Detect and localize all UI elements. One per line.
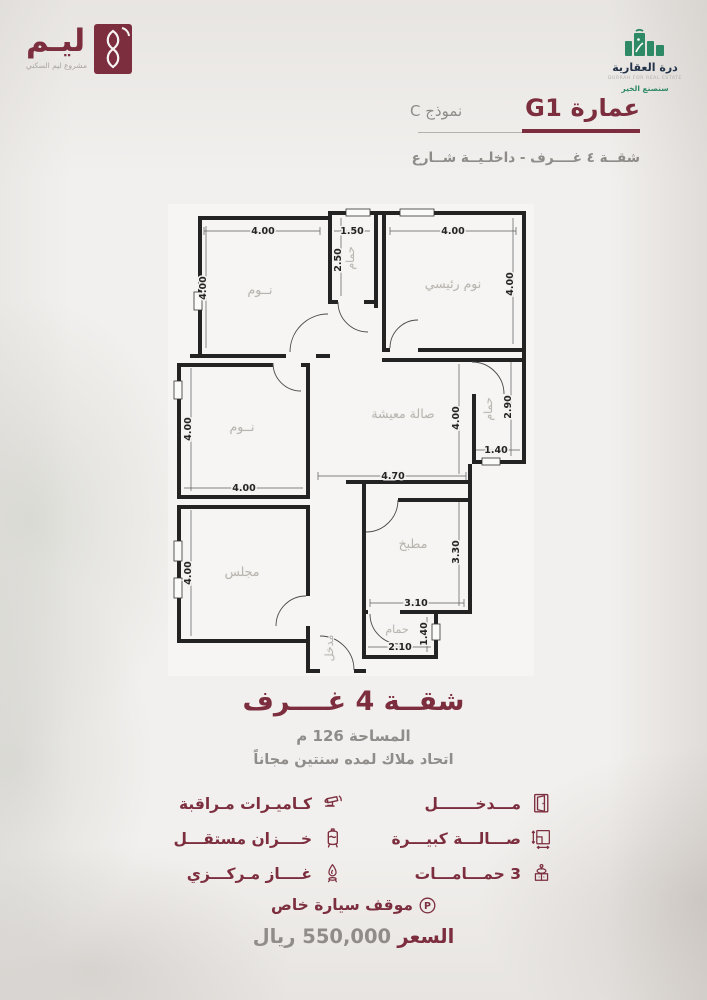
dim-bath-top-w: 1.50: [340, 226, 364, 237]
feature-label: كـاميـرات مـراقبة: [179, 795, 312, 813]
dim-kitchen-right: 3.30: [451, 540, 462, 564]
brand-durrah-tagline: سنصنع الخير: [605, 84, 685, 93]
poster-page: ليـم مشروع ليم السكني درة العقارية DURRA…: [0, 0, 707, 1000]
price-row: السعر 550,000 ريال: [0, 925, 707, 948]
dim-bath-right-w: 1.40: [484, 445, 508, 456]
sofa-icon: [530, 827, 553, 850]
tank-icon: [321, 827, 344, 850]
feature-central-gas: غــــاز مـركـــزي: [154, 862, 344, 885]
room-label-bedroom-ml: نــوم: [230, 419, 255, 435]
dim-majlis-left: 4.00: [183, 561, 194, 585]
feature-label: 3 حمـــامـــات: [415, 865, 521, 883]
leem-logo-icon: [94, 24, 132, 76]
summary-note: اتحاد ملاك لمده سنتين مجاناً: [0, 752, 707, 768]
apartment-subtitle: شقــة ٤ غــــرف - داخلـيــة شــارع: [410, 150, 640, 166]
dim-living-right: 4.00: [451, 406, 462, 430]
feature-label: مـــدخـــــــل: [424, 795, 521, 813]
summary-title: شقــة 4 غــــرف: [0, 686, 707, 717]
room-label-bath-right: حمام: [482, 397, 495, 420]
dim-ml-left: 4.00: [183, 417, 194, 441]
feature-label: غــــاز مـركـــزي: [187, 865, 312, 883]
parking-letter: P: [424, 901, 431, 912]
dim-bath-bottom-h: 1.40: [419, 622, 430, 646]
room-label-entrance: مدخل: [323, 634, 336, 661]
model-label: نموذج C: [410, 102, 462, 120]
feature-cctv: كـاميـرات مـراقبة: [154, 792, 344, 815]
room-label-majlis: مجلس: [225, 564, 260, 580]
feature-parking: P موقف سيارة خاص: [271, 896, 436, 914]
feature-entrance: مـــدخـــــــل: [348, 792, 553, 815]
room-label-master-bedroom: نوم رئيسي: [425, 276, 482, 292]
feature-3-bathrooms: 3 حمـــامـــات: [348, 862, 553, 885]
summary-area: المساحة 126 م: [0, 727, 707, 745]
price-value: 550,000 ريال: [253, 925, 391, 948]
floor-plan: 4.00 4.00 1.50 2.50 4.00 4.00 4.00 4.00 …: [160, 196, 550, 681]
room-label-bath-top: حمام: [344, 246, 357, 269]
price-label: السعر: [397, 925, 454, 948]
dim-living-bottom: 4.70: [381, 471, 405, 482]
dim-tl-left: 4.00: [198, 276, 209, 300]
brand-durrah-name: درة العقارية: [605, 61, 685, 74]
dim-kitchen-bottom: 3.10: [404, 598, 428, 609]
feature-label: صـــالـــة كبيـــرة: [391, 830, 521, 848]
brand-durrah-subtitle: DURRAH FOR REAL ESTATE: [605, 76, 685, 81]
room-label-living: صالة معيشة: [371, 406, 434, 421]
parking-icon: P: [419, 897, 436, 914]
feature-water-tank: خــــزان مستقـــل: [154, 827, 344, 850]
parking-label: موقف سيارة خاص: [271, 896, 413, 914]
dim-master-top: 4.00: [441, 226, 465, 237]
features-grid: مـــدخـــــــل كـاميـرات مـراقبة: [154, 792, 553, 885]
title-block: عمارة G1 نموذج C شقــة ٤ غــــرف - داخلـ…: [410, 94, 640, 166]
dim-bath-top-h: 2.50: [333, 248, 344, 272]
brand-leem: ليـم مشروع ليم السكني: [26, 24, 132, 76]
feature-label: خــــزان مستقـــل: [173, 830, 312, 848]
brand-leem-name: ليـم: [26, 24, 87, 58]
durrah-logo-icon: [622, 28, 668, 58]
gas-icon: [321, 862, 344, 885]
building-title: عمارة G1: [525, 94, 640, 122]
dim-ml-bottom: 4.00: [232, 483, 256, 494]
room-label-kitchen: مطبخ: [399, 536, 428, 551]
room-label-bath-bottom: حمام: [385, 623, 408, 636]
brand-leem-tagline: مشروع ليم السكني: [26, 61, 87, 70]
features-section: مـــدخـــــــل كـاميـرات مـراقبة: [0, 792, 707, 914]
dim-bath-bottom-w: 2.10: [388, 642, 412, 653]
sink-icon: [530, 862, 553, 885]
feature-large-hall: صـــالـــة كبيـــرة: [348, 827, 553, 850]
title-underline: [410, 129, 640, 133]
cctv-icon: [321, 792, 344, 815]
room-label-bedroom-tl: نــوم: [248, 282, 273, 298]
brand-durrah: درة العقارية DURRAH FOR REAL ESTATE سنصن…: [605, 28, 685, 93]
dim-tl-top: 4.00: [251, 226, 275, 237]
door-icon: [530, 792, 553, 815]
dim-master-right: 4.00: [505, 272, 516, 296]
dim-bath-right-h: 2.90: [503, 395, 514, 419]
apartment-summary: شقــة 4 غــــرف المساحة 126 م اتحاد ملاك…: [0, 686, 707, 768]
